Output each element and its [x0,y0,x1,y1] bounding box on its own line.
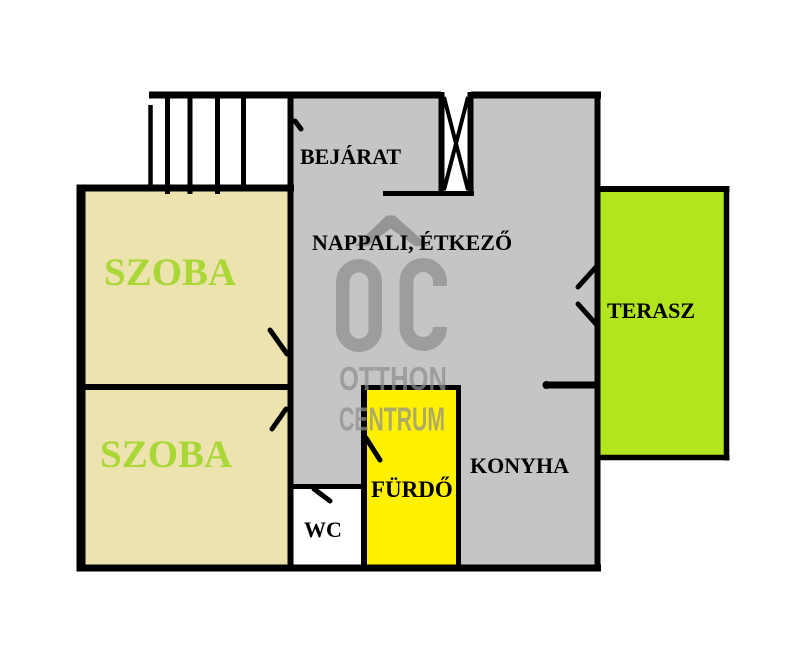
svg-text:SZOBA: SZOBA [100,433,232,476]
svg-text:WC: WC [304,517,342,542]
svg-text:CENTRUM: CENTRUM [339,401,445,438]
svg-text:NAPPALI, ÉTKEZŐ: NAPPALI, ÉTKEZŐ [312,230,512,255]
svg-text:FÜRDŐ: FÜRDŐ [371,476,453,502]
svg-text:KONYHA: KONYHA [470,453,569,478]
svg-text:OTTHON: OTTHON [339,360,447,397]
svg-text:BEJÁRAT: BEJÁRAT [300,144,401,169]
svg-text:TERASZ: TERASZ [607,298,695,323]
svg-text:SZOBA: SZOBA [104,251,236,294]
